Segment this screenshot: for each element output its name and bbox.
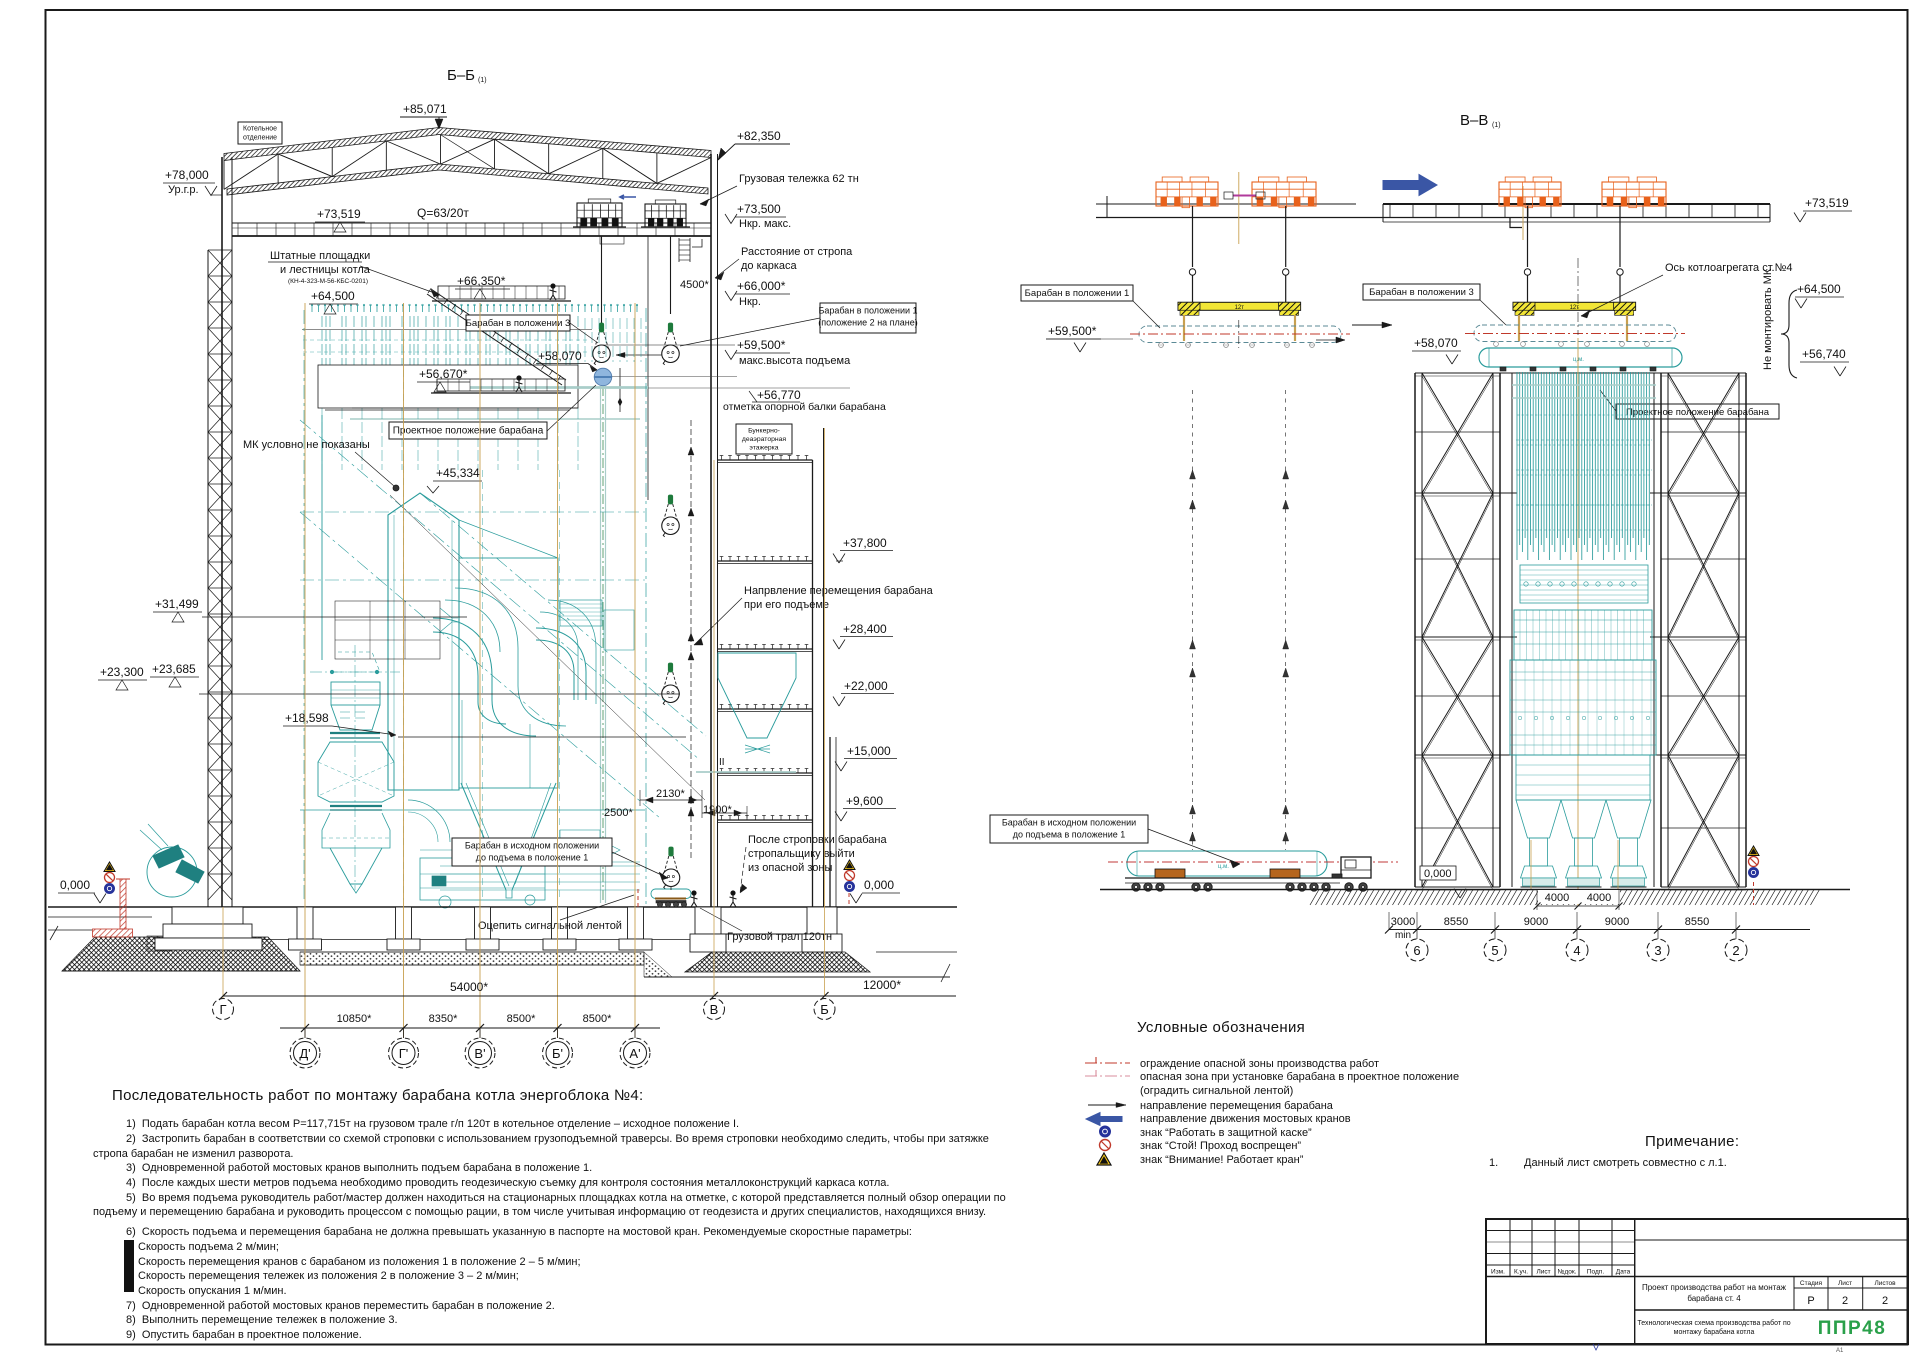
svg-text:2: 2 <box>1842 1295 1848 1307</box>
svg-text:Ур.г.р.: Ур.г.р. <box>168 184 199 196</box>
svg-text:Оцепить сигнальной лентой: Оцепить сигнальной лентой <box>478 920 622 932</box>
svg-text:2130*: 2130* <box>656 788 685 800</box>
svg-text:(оградить сигнальной лентой): (оградить сигнальной лентой) <box>1140 1085 1293 1097</box>
svg-text:После строповки барабана: После строповки барабана <box>748 834 887 846</box>
svg-text:+85,071: +85,071 <box>403 102 447 116</box>
svg-text:ц.м.: ц.м. <box>1218 864 1229 870</box>
svg-text:Барабан в исходном положении: Барабан в исходном положении <box>1002 818 1136 828</box>
svg-text:Котельное: Котельное <box>243 126 277 133</box>
svg-text:Не монтировать МК: Не монтировать МК <box>1762 268 1774 370</box>
svg-text:5: 5 <box>1491 943 1498 958</box>
svg-text:до подъема в положение 1: до подъема в положение 1 <box>1013 830 1126 840</box>
svg-text:монтажу барабана котла: монтажу барабана котла <box>1674 1328 1755 1336</box>
svg-text:9000: 9000 <box>1524 916 1548 928</box>
svg-text:Грузовая тележка 62 тн: Грузовая тележка 62 тн <box>739 173 859 185</box>
svg-text:В': В' <box>474 1046 485 1061</box>
svg-text:(положение 2 на плане): (положение 2 на плане) <box>818 318 918 328</box>
svg-text:Скорость опускания 1 м/мин.: Скорость опускания 1 м/мин. <box>138 1285 287 1297</box>
svg-text:+73,519: +73,519 <box>1805 196 1849 210</box>
svg-text:+78,000: +78,000 <box>165 168 209 182</box>
svg-text:+66,350*: +66,350* <box>457 274 506 288</box>
svg-text:(1): (1) <box>1492 122 1501 129</box>
svg-text:+64,500: +64,500 <box>1797 282 1841 296</box>
svg-text:2500*: 2500* <box>604 807 633 819</box>
svg-text:Барабан в положении 3: Барабан в положении 3 <box>466 318 571 329</box>
svg-text:+23,685: +23,685 <box>152 662 196 676</box>
svg-text:знак “Внимание! Работает кран”: знак “Внимание! Работает кран” <box>1140 1154 1304 1166</box>
svg-text:8550: 8550 <box>1444 916 1468 928</box>
svg-text:деаэраторная: деаэраторная <box>742 436 787 443</box>
svg-text:8500*: 8500* <box>583 1013 612 1025</box>
svg-text:Нкр. макс.: Нкр. макс. <box>739 218 791 230</box>
svg-text:+9,600: +9,600 <box>846 794 883 808</box>
svg-text:А': А' <box>629 1046 640 1061</box>
svg-text:1) Подать барабан котла весом: 1) Подать барабан котла весом P=117,715т… <box>126 1118 739 1130</box>
svg-text:Последовательность работ по мо: Последовательность работ по монтажу бара… <box>112 1087 644 1104</box>
svg-text:Б': Б' <box>552 1046 563 1061</box>
svg-text:направление движения мостовых: направление движения мостовых кранов <box>1140 1113 1351 1125</box>
svg-text:Изм.: Изм. <box>1491 1269 1505 1276</box>
svg-text:3: 3 <box>1654 943 1661 958</box>
svg-text:стропальщику выйти: стропальщику выйти <box>748 848 855 860</box>
svg-text:Грузовой трал 120тн: Грузовой трал 120тн <box>727 931 832 943</box>
svg-text:+82,350: +82,350 <box>737 129 781 143</box>
svg-text:ц.м.: ц.м. <box>1573 357 1584 363</box>
svg-text:Скорость перемещения тележек и: Скорость перемещения тележек из положени… <box>138 1270 519 1282</box>
svg-text:Б–Б: Б–Б <box>447 67 475 84</box>
svg-text:Данный лист смотреть совместно: Данный лист смотреть совместно с л.1. <box>1524 1157 1727 1169</box>
svg-text:Условные обозначения: Условные обозначения <box>1137 1019 1305 1036</box>
svg-text:Подп.: Подп. <box>1587 1269 1604 1276</box>
svg-text:отметка опорной балки барабана: отметка опорной балки барабана <box>723 401 886 413</box>
svg-text:+23,300: +23,300 <box>100 665 144 679</box>
svg-text:Дата: Дата <box>1616 1269 1631 1276</box>
svg-text:направление перемещения бараба: направление перемещения барабана <box>1140 1100 1334 1112</box>
svg-text:Скорость подъема 2 м/мин;: Скорость подъема 2 м/мин; <box>138 1241 279 1253</box>
svg-text:подъему и перемещению барабана: подъему и перемещению барабана и руковод… <box>93 1206 986 1218</box>
svg-text:Проект производства работ на м: Проект производства работ на монтаж <box>1642 1283 1787 1292</box>
svg-text:II: II <box>719 757 725 768</box>
svg-text:В: В <box>710 1002 719 1017</box>
svg-text:до подъема в положение 1: до подъема в положение 1 <box>476 853 589 863</box>
svg-text:6: 6 <box>1413 943 1420 958</box>
svg-text:при его подъеме: при его подъеме <box>744 599 829 611</box>
svg-text:Лист: Лист <box>1838 1280 1852 1287</box>
svg-text:Барабан в положении 1: Барабан в положении 1 <box>818 306 917 316</box>
svg-text:4000: 4000 <box>1545 892 1569 904</box>
svg-text:Барабан в положении 1: Барабан в положении 1 <box>1025 288 1130 299</box>
svg-text:12т: 12т <box>1235 305 1245 311</box>
svg-text:6) Скорость подъема и перемещ: 6) Скорость подъема и перемещения бараба… <box>126 1226 912 1238</box>
svg-text:В–В: В–В <box>1460 112 1488 129</box>
svg-text:Q=63/20т: Q=63/20т <box>417 206 469 220</box>
svg-text:+56,740: +56,740 <box>1802 347 1846 361</box>
svg-text:Барабан в положении 3: Барабан в положении 3 <box>1369 287 1474 298</box>
svg-text:ограждение опасной зоны произв: ограждение опасной зоны производства раб… <box>1140 1058 1379 1070</box>
svg-text:+56,670*: +56,670* <box>419 367 468 381</box>
svg-text:2: 2 <box>1882 1295 1888 1307</box>
svg-text:+45,334: +45,334 <box>436 466 480 480</box>
svg-text:этажерка: этажерка <box>749 444 778 451</box>
svg-text:К.уч.: К.уч. <box>1514 1269 1528 1276</box>
svg-text:и лестницы котла: и лестницы котла <box>280 264 371 276</box>
svg-text:7) Одновременной работой мост: 7) Одновременной работой мостовых кранов… <box>126 1300 555 1312</box>
svg-text:Лист: Лист <box>1536 1269 1550 1276</box>
svg-text:2: 2 <box>1732 943 1739 958</box>
svg-text:+73,519: +73,519 <box>317 207 361 221</box>
svg-text:Бункерно-: Бункерно- <box>748 427 780 434</box>
svg-text:знак “Работать в защитной каск: знак “Работать в защитной каске” <box>1140 1127 1312 1139</box>
svg-text:Б: Б <box>820 1002 829 1017</box>
svg-text:знак “Стой! Проход воспрещен”: знак “Стой! Проход воспрещен” <box>1140 1140 1301 1152</box>
svg-text:до каркаса: до каркаса <box>741 260 798 272</box>
svg-text:Примечание:: Примечание: <box>1645 1133 1739 1150</box>
svg-text:+56,770: +56,770 <box>757 388 801 402</box>
svg-text:+37,800: +37,800 <box>843 536 887 550</box>
svg-text:+31,499: +31,499 <box>155 597 199 611</box>
svg-text:4) После каждых шести метров: 4) После каждых шести метров подъема нео… <box>126 1177 889 1189</box>
svg-text:min: min <box>1395 930 1411 941</box>
svg-text:0,000: 0,000 <box>1424 868 1452 880</box>
svg-text:Нкр.: Нкр. <box>739 296 761 308</box>
svg-text:3) Одновременной работой мост: 3) Одновременной работой мостовых кранов… <box>126 1162 592 1174</box>
svg-text:+22,000: +22,000 <box>844 679 888 693</box>
svg-text:0,000: 0,000 <box>60 878 90 892</box>
svg-text:2) Застропить барабан в соотв: 2) Застропить барабан в соответствии со … <box>126 1133 989 1145</box>
svg-text:(1): (1) <box>478 77 487 84</box>
svg-text:3000: 3000 <box>1391 916 1415 928</box>
svg-text:+18,598: +18,598 <box>285 711 329 725</box>
svg-text:стропа барабан не изменил разв: стропа барабан не изменил разворота. <box>93 1148 294 1160</box>
svg-text:МК условно не показаны: МК условно не показаны <box>243 439 370 451</box>
svg-text:+15,000: +15,000 <box>847 744 891 758</box>
svg-text:+64,500: +64,500 <box>311 289 355 303</box>
svg-text:4000: 4000 <box>1587 892 1611 904</box>
svg-text:10850*: 10850* <box>337 1013 373 1025</box>
svg-text:Скорость перемещения кранов с: Скорость перемещения кранов с барабаном … <box>138 1256 581 1268</box>
svg-text:отделение: отделение <box>243 135 277 142</box>
svg-text:Стадия: Стадия <box>1800 1280 1823 1287</box>
svg-text:5) Во время подъема руководит: 5) Во время подъема руководитель работ/м… <box>126 1192 1006 1204</box>
svg-text:барабана ст. 4: барабана ст. 4 <box>1687 1294 1741 1303</box>
svg-text:Р: Р <box>1807 1295 1814 1307</box>
svg-text:54000*: 54000* <box>450 980 488 994</box>
svg-text:№док.: №док. <box>1557 1269 1576 1276</box>
svg-text:Технологическая схема производ: Технологическая схема производства работ… <box>1637 1319 1790 1327</box>
svg-text:8350*: 8350* <box>429 1013 458 1025</box>
svg-text:+58,070: +58,070 <box>1414 336 1458 350</box>
svg-text:+66,000*: +66,000* <box>737 279 786 293</box>
svg-text:ППР48: ППР48 <box>1818 1318 1887 1339</box>
svg-text:8) Выполнить перемещение теле: 8) Выполнить перемещение тележек в полож… <box>126 1314 398 1326</box>
svg-text:А1: А1 <box>1836 1348 1844 1354</box>
svg-text:8500*: 8500* <box>507 1013 536 1025</box>
svg-text:+59,500*: +59,500* <box>1048 324 1097 338</box>
svg-text:Листов: Листов <box>1874 1280 1896 1287</box>
svg-text:Расстояние от стропа: Расстояние от стропа <box>741 246 853 258</box>
svg-text:Проектное положение барабана: Проектное положение барабана <box>1626 407 1770 418</box>
svg-text:Г': Г' <box>399 1046 409 1061</box>
svg-text:9) Опустить барабан в проектн: 9) Опустить барабан в проектное положени… <box>126 1329 362 1341</box>
svg-text:0,000: 0,000 <box>864 878 894 892</box>
svg-text:+59,500*: +59,500* <box>737 338 786 352</box>
svg-text:из опасной зоны: из опасной зоны <box>748 862 832 874</box>
svg-text:1.: 1. <box>1489 1157 1498 1169</box>
svg-text:Напрвление перемещения барабан: Напрвление перемещения барабана <box>744 585 934 597</box>
svg-text:4500*: 4500* <box>680 279 709 291</box>
svg-text:Штатные площадки: Штатные площадки <box>270 250 370 262</box>
svg-text:+28,400: +28,400 <box>843 622 887 636</box>
svg-text:(КН-4-323-М-56-КБС-0201): (КН-4-323-М-56-КБС-0201) <box>288 278 368 285</box>
svg-text:+73,500: +73,500 <box>737 202 781 216</box>
svg-text:макс.высота подъема: макс.высота подъема <box>739 355 851 367</box>
svg-text:Г: Г <box>219 1002 226 1017</box>
svg-text:4: 4 <box>1573 943 1580 958</box>
svg-text:1900*: 1900* <box>703 804 732 816</box>
svg-text:Барабан в исходном положении: Барабан в исходном положении <box>465 841 599 851</box>
svg-text:опасная зона при установке бар: опасная зона при установке барабана в пр… <box>1140 1071 1459 1083</box>
svg-text:+58,070: +58,070 <box>538 349 582 363</box>
svg-text:8550: 8550 <box>1685 916 1709 928</box>
svg-text:9000: 9000 <box>1605 916 1629 928</box>
svg-text:12000*: 12000* <box>863 978 901 992</box>
svg-text:Проектное положение барабана: Проектное положение барабана <box>393 425 544 437</box>
svg-text:Д': Д' <box>299 1046 310 1061</box>
